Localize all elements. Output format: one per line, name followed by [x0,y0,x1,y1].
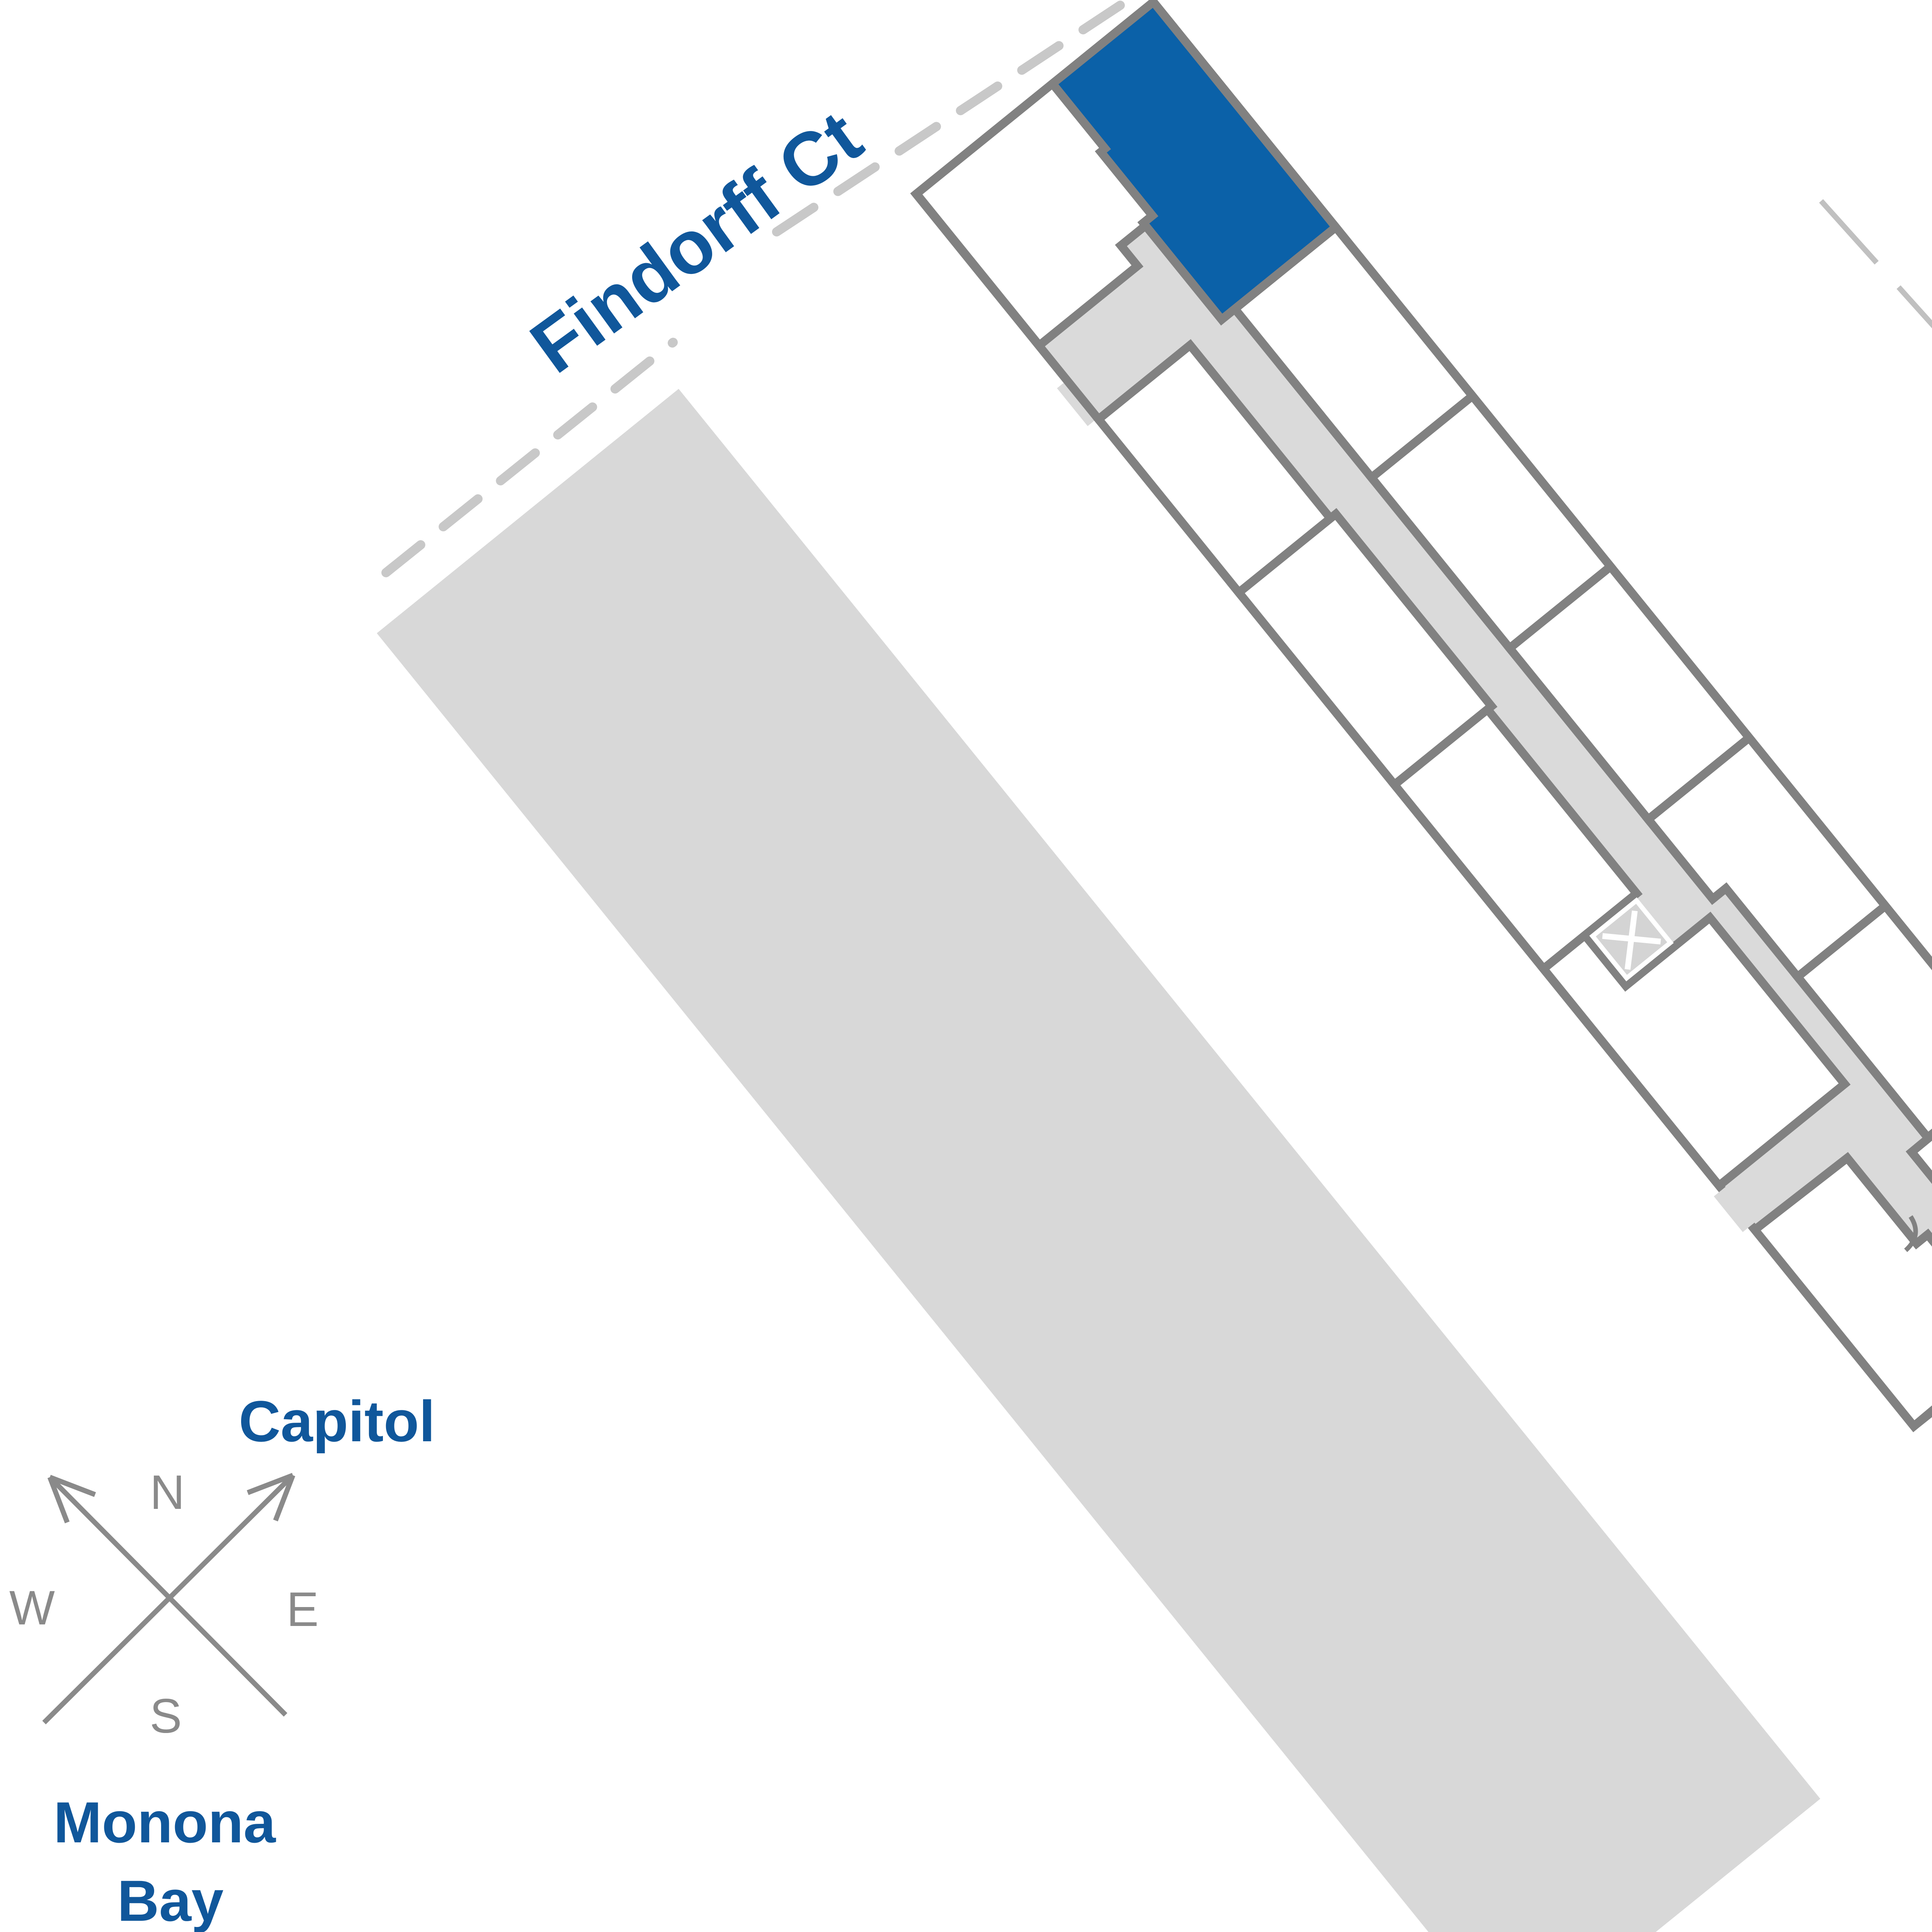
svg-text:E: E [286,1583,318,1636]
svg-text:Monona: Monona [54,1790,276,1855]
svg-text:Capitol: Capitol [239,1389,435,1454]
svg-text:S: S [150,1689,182,1743]
svg-text:N: N [150,1466,185,1519]
svg-text:Findorff Ct: Findorff Ct [516,95,877,389]
svg-text:W: W [9,1581,55,1635]
svg-text:Bay: Bay [117,1868,223,1932]
